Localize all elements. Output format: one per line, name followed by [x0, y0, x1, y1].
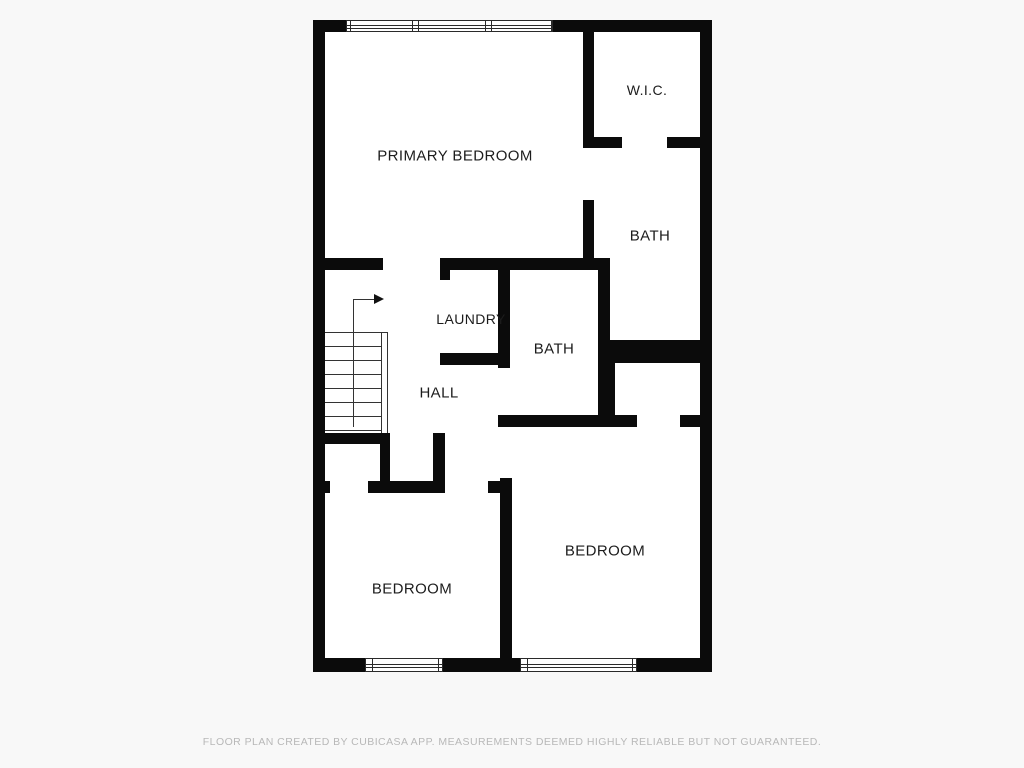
- wall-segment: [637, 658, 712, 672]
- window-mullion: [632, 659, 633, 671]
- stair-rail-line: [381, 332, 382, 433]
- wall-segment: [605, 340, 712, 363]
- wall-segment: [440, 353, 502, 365]
- window: [365, 658, 443, 672]
- wall-segment: [313, 20, 325, 672]
- window-glass-line: [521, 667, 636, 668]
- room-label-bath-primary: BATH: [630, 228, 671, 245]
- room-label-wic: W.I.C.: [627, 82, 668, 98]
- wall-segment: [313, 433, 388, 444]
- floor-plan: PRIMARY BEDROOMW.I.C.BATHLAUNDRYBATHHALL…: [0, 0, 1024, 768]
- window-mullion: [551, 21, 552, 31]
- wall-segment: [440, 258, 450, 280]
- wall-segment: [667, 137, 700, 148]
- room-label-bedroom-left: BEDROOM: [372, 581, 452, 598]
- floor-plan-page: PRIMARY BEDROOMW.I.C.BATHLAUNDRYBATHHALL…: [0, 0, 1024, 768]
- wall-segment: [313, 258, 383, 270]
- window-glass-line: [347, 28, 552, 29]
- wall-segment: [498, 415, 637, 427]
- window-mullion: [485, 21, 486, 31]
- wall-segment: [553, 20, 712, 32]
- window-mullion: [372, 659, 373, 671]
- wall-segment: [583, 137, 622, 148]
- wall-segment: [488, 481, 500, 493]
- window-glass-line: [366, 664, 442, 665]
- room-label-primary-bedroom: PRIMARY BEDROOM: [377, 148, 532, 165]
- window-glass-line: [521, 664, 636, 665]
- window-mullion: [491, 21, 492, 31]
- window-mullion: [418, 21, 419, 31]
- stair-up-arrow: [374, 294, 384, 304]
- footer-disclaimer: FLOOR PLAN CREATED BY CUBICASA APP. MEAS…: [0, 736, 1024, 748]
- stair-tread: [325, 430, 381, 431]
- room-label-bedroom-right: BEDROOM: [565, 543, 645, 560]
- window-mullion: [350, 21, 351, 31]
- wall-segment: [583, 32, 594, 137]
- stair-tread: [325, 332, 387, 333]
- window-mullion: [438, 659, 439, 671]
- wall-segment: [313, 481, 330, 493]
- window-glass-line: [347, 25, 552, 26]
- wall-segment: [368, 481, 445, 493]
- window: [520, 658, 637, 672]
- room-label-laundry: LAUNDRY: [436, 311, 505, 327]
- window-mullion: [412, 21, 413, 31]
- wall-segment: [443, 658, 520, 672]
- stair-rail-line: [387, 332, 388, 433]
- window: [346, 20, 553, 32]
- room-label-bath-hall: BATH: [534, 341, 575, 358]
- wall-segment: [500, 478, 512, 658]
- wall-segment: [583, 200, 594, 270]
- window-glass-line: [366, 667, 442, 668]
- room-label-hall: HALL: [419, 385, 458, 402]
- window-mullion: [527, 659, 528, 671]
- wall-segment: [313, 658, 365, 672]
- stair-tread: [353, 299, 375, 300]
- stair-rail-line: [353, 299, 354, 427]
- wall-segment: [680, 415, 700, 427]
